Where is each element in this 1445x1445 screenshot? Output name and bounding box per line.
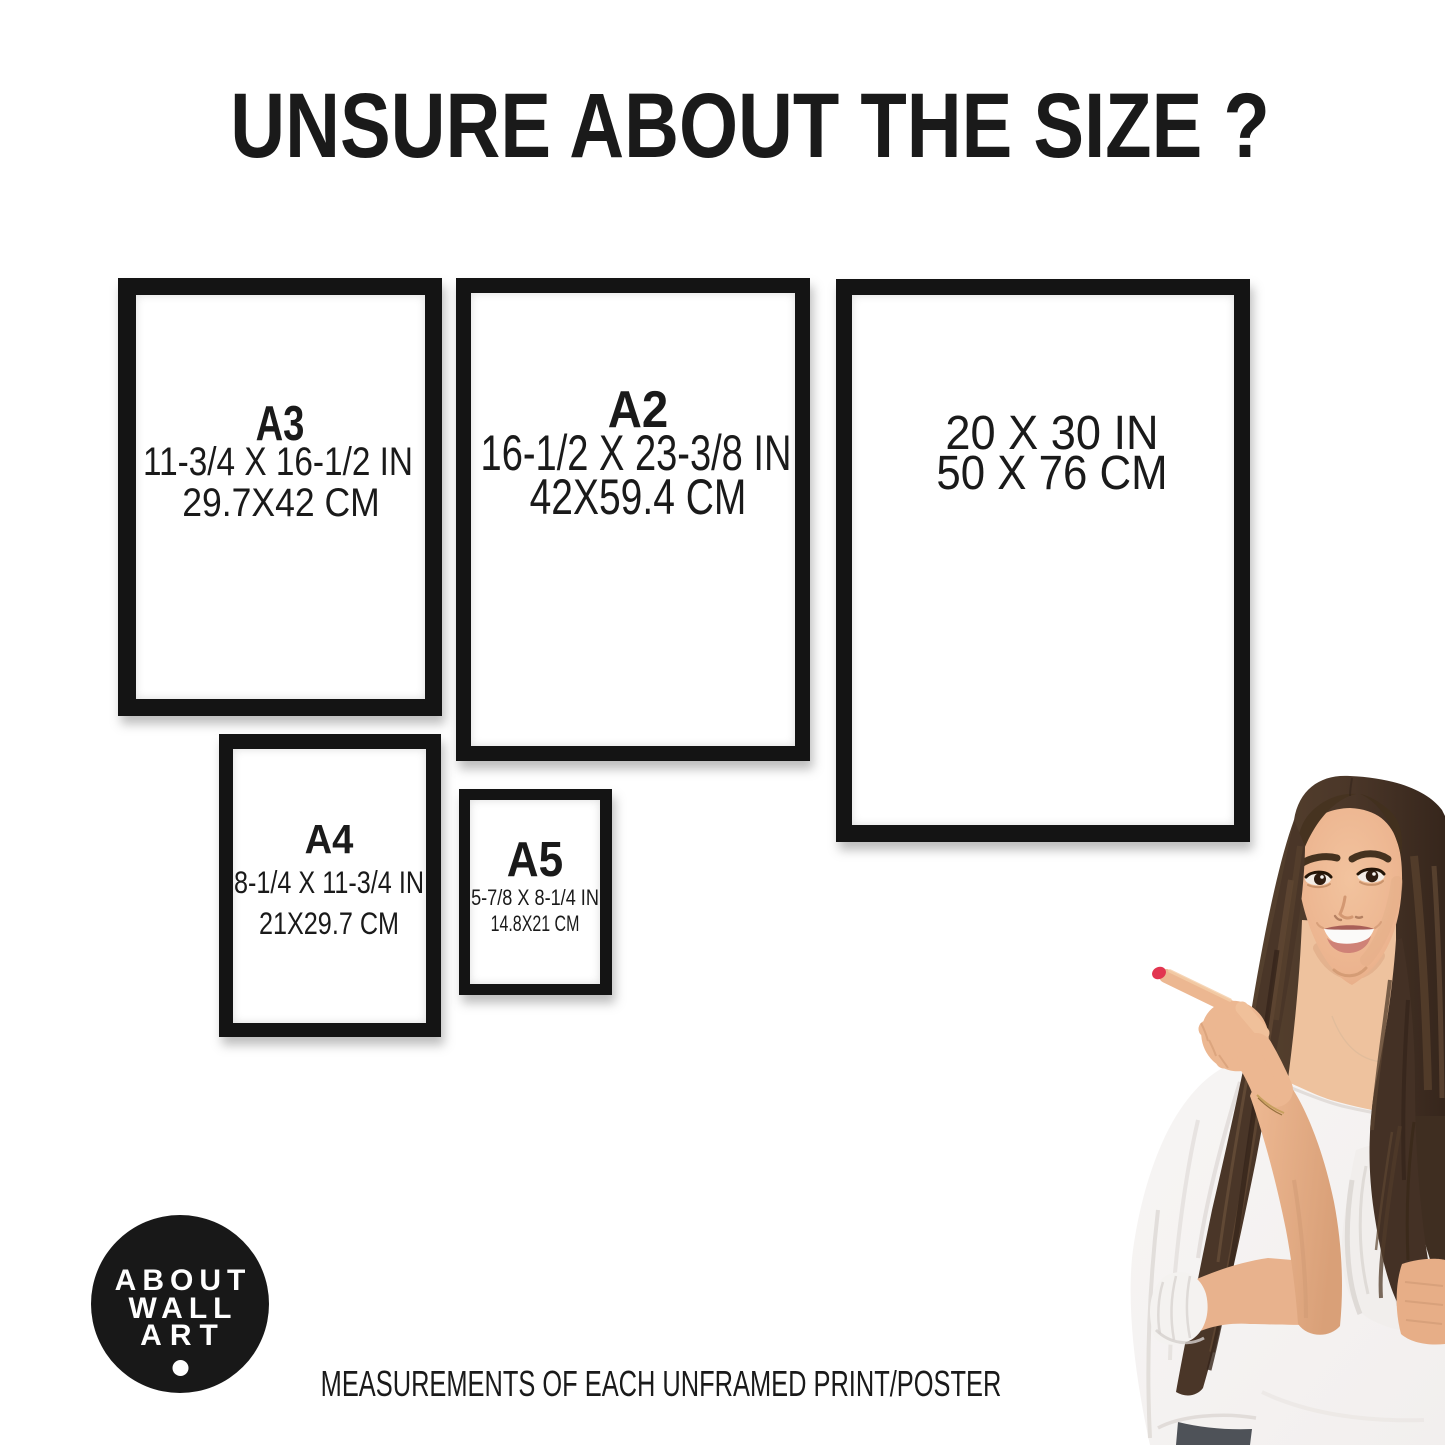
svg-text:ART: ART bbox=[140, 1319, 226, 1352]
